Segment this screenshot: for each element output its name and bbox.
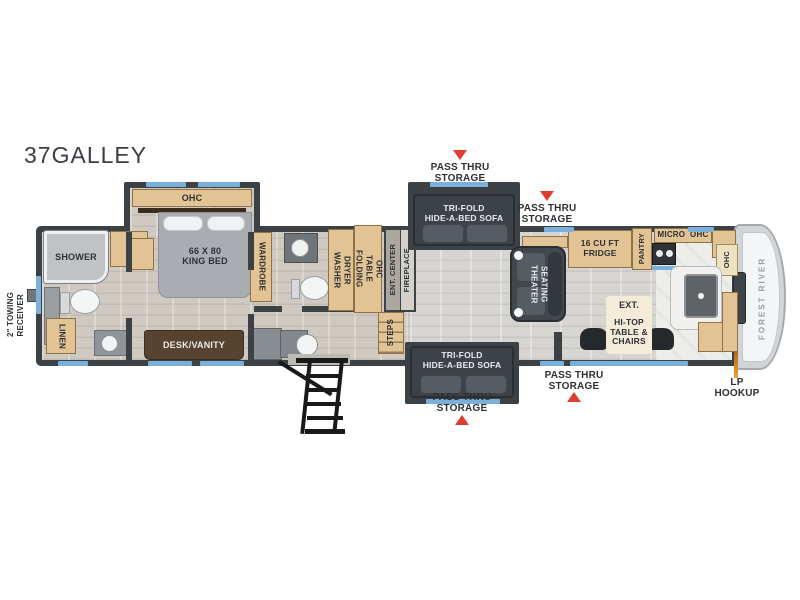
pillow: [207, 216, 245, 231]
nightstand: [130, 238, 154, 270]
toilet-mid: [300, 276, 329, 300]
king-bed-label: 66 X 80KING BED: [158, 246, 252, 266]
wall: [254, 306, 282, 312]
window-strip: [198, 182, 240, 187]
window-strip: [58, 361, 88, 366]
dryer-label: DRYER: [342, 256, 351, 285]
kitchen-counter-side: [722, 292, 738, 352]
interior-steps: STEPS: [378, 312, 404, 354]
window-strip: [200, 361, 244, 366]
washer-label: WASHER: [332, 252, 341, 288]
front-vanity-sink: [101, 335, 118, 352]
desk-vanity: DESK/VANITY: [144, 330, 244, 360]
window-strip: [688, 227, 714, 232]
shower: SHOWER: [44, 231, 108, 283]
ohc-kitchen-label: OHC: [723, 251, 731, 268]
wall: [248, 314, 254, 360]
stove: [652, 243, 676, 265]
lp-hose: [734, 352, 738, 378]
hall-vanity-sink: [296, 334, 318, 356]
wall: [126, 318, 132, 360]
ent-center-label: ENT. CENTER: [389, 244, 397, 295]
ext-label: EXT.: [606, 300, 652, 310]
arrow-down-icon: [540, 191, 554, 201]
lp-hookup-label: LPHOOKUP: [701, 377, 773, 399]
arrow-up-icon: [455, 415, 469, 425]
pass-thru-storage-label: PASS THRUSTORAGE: [417, 392, 507, 414]
fireplace-label: FIREPLACE: [403, 248, 411, 292]
ent-center: ENT. CENTER: [386, 230, 401, 310]
pass-thru-storage-label: PASS THRUSTORAGE: [415, 162, 505, 184]
kitchen-faucet: [698, 293, 704, 299]
wall: [248, 232, 254, 270]
window-strip: [148, 361, 192, 366]
wall: [554, 332, 562, 360]
washer-dryer-cabinet: WASHER DRYER: [328, 229, 354, 311]
arrow-up-icon: [567, 392, 581, 402]
pass-thru-storage-label: PASS THRUSTORAGE: [529, 370, 619, 392]
desk-vanity-label: DESK/VANITY: [163, 340, 225, 350]
wall: [126, 232, 132, 272]
window-strip: [570, 361, 688, 366]
linen-label: LINEN: [57, 324, 66, 349]
shower-label: SHOWER: [55, 252, 97, 262]
towing-receiver-label: 2" TOWING RECEIVER: [4, 272, 28, 358]
window-strip: [36, 276, 41, 314]
entry-steps-ladder: [288, 356, 358, 440]
ohc-bedroom-label: OHC: [182, 193, 203, 203]
fridge: 16 CU FTFRIDGE: [568, 230, 632, 268]
hitop-table-label: EXT. HI-TOPTABLE &CHAIRS: [606, 296, 652, 354]
pass-thru-storage-label: PASS THRUSTORAGE: [502, 203, 592, 225]
arrow-down-icon: [453, 150, 467, 160]
fridge-label: 16 CU FTFRIDGE: [581, 239, 619, 258]
pantry: PANTRY: [632, 228, 652, 270]
pillow: [163, 216, 203, 231]
ohc-mid-label: OHC: [373, 260, 382, 278]
sofa-bottom-label: TRI-FOLDHIDE-A-BED SOFA: [407, 351, 517, 370]
pantry-label: PANTRY: [638, 233, 646, 264]
ohc-bedroom: OHC: [132, 189, 252, 207]
wardrobe-label: WARDROBE: [257, 242, 266, 291]
bath-sink: [291, 239, 309, 257]
toilet-tank-front: [60, 292, 70, 314]
toilet-tank-mid: [291, 279, 300, 299]
forest-river-label: FOREST RIVER: [756, 252, 770, 344]
linen-cabinet: LINEN: [46, 318, 76, 354]
window-strip: [544, 227, 574, 232]
floorplan: 37GALLEY FOREST RIVER OHC 66 X 80KING BE…: [0, 0, 800, 600]
window-strip: [146, 182, 186, 187]
window-strip: [540, 361, 564, 366]
folding-table-cabinet: FOLDING TABLE OHC: [354, 225, 382, 313]
theater-seating-label: THEATER SEATING: [516, 254, 560, 314]
page-title: 37GALLEY: [24, 142, 147, 169]
chair: [580, 328, 608, 350]
micro-ohc-label: MICRO OHC: [658, 231, 709, 240]
toilet-front: [70, 289, 100, 314]
steps-label: STEPS: [387, 319, 396, 346]
